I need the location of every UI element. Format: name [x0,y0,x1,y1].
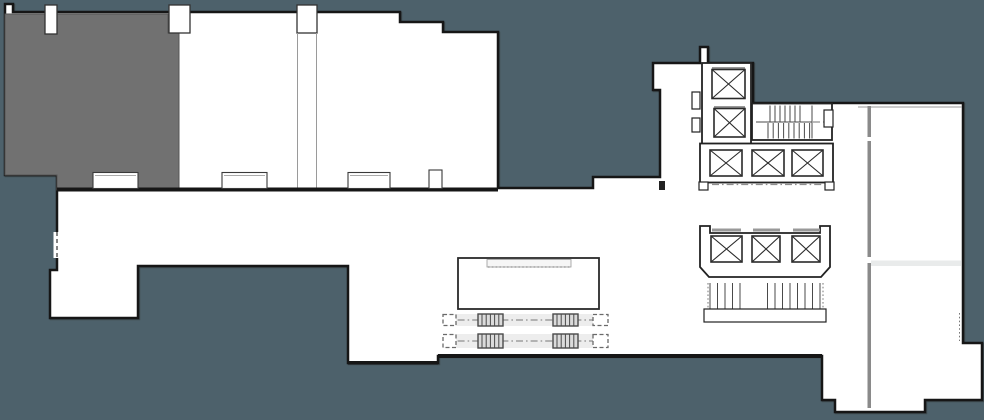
floor-plan-canvas [0,0,984,420]
escalator-end-cap [593,315,608,326]
stage-platform [458,258,599,309]
elevator-bank-lower [700,226,830,277]
elevator-door-sill [712,229,741,232]
escalator-end-cap [443,315,456,326]
wall-recess-1 [93,173,138,189]
elevator-shaft-2 [714,109,745,138]
elevator-shaft-7 [752,236,780,262]
door-opening [54,232,61,258]
escalator-run-lower [443,334,608,348]
wing-wall-segment [868,106,872,137]
stair-landing-tab [824,110,833,127]
stage-recess [487,260,571,268]
wing-floor-band [871,261,961,267]
bank-corner-tab [699,182,708,190]
elevator-shaft-3 [710,150,742,176]
wall-recess-4 [429,170,442,189]
escalator-run-upper [443,314,608,326]
elevator-shaft-4 [752,150,784,176]
wing-wall-segment [868,141,872,257]
column-notch-3 [297,5,317,33]
elevator-door-sill [793,229,820,232]
wing-wall-segment [868,263,872,408]
bank-corner-tab [825,182,834,190]
elevator-shaft-5 [792,150,823,176]
elevator-shaft-8 [792,236,820,262]
elevator-shaft-1 [712,70,745,99]
pilaster [692,118,700,132]
escalator-tread-block [478,314,503,326]
elevator-shaft-6 [711,236,742,262]
column-notch-2 [169,5,190,33]
escalator-tread-block [553,334,578,348]
elevator-bank-middle [699,144,834,191]
pilaster [692,92,700,109]
highlighted-room [5,14,179,190]
escalator-end-cap [593,335,608,348]
floor-plan-drawing [0,0,984,420]
wall-return [659,181,665,190]
escalator-end-cap [443,335,456,348]
wall-recess-3 [348,173,390,189]
stairwell [752,104,833,141]
escalator-tread-block [553,314,578,326]
escalator-tread-block [478,334,503,348]
elevator-door-sill [753,229,780,232]
service-band [704,309,826,322]
wall-recess-2 [222,173,267,189]
column-notch-1 [45,5,57,34]
